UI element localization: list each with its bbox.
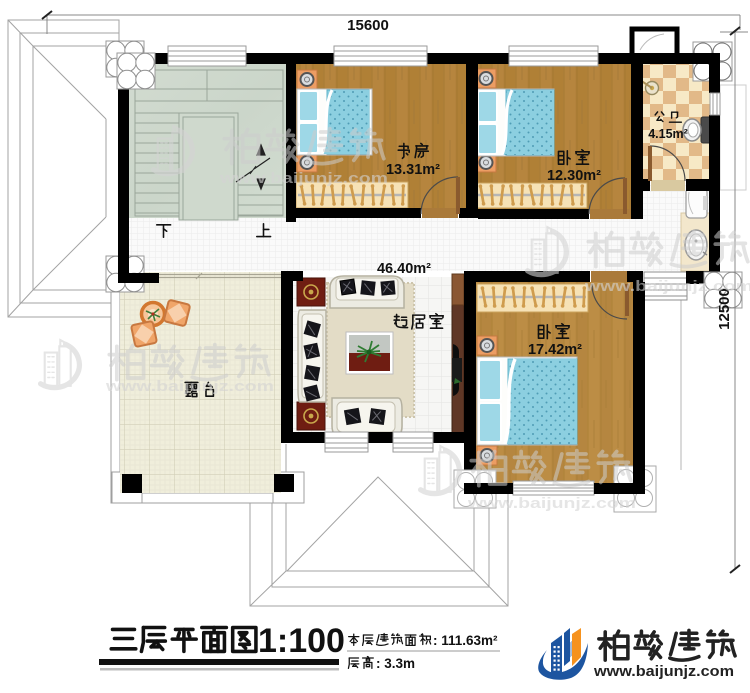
svg-text:www.baijunjz.com: www.baijunjz.com — [584, 278, 750, 295]
svg-text:1:100: 1:100 — [258, 622, 345, 660]
svg-text:www.baijunjz.com: www.baijunjz.com — [593, 663, 734, 680]
svg-text:15600: 15600 — [347, 17, 389, 34]
svg-text:17.42m²: 17.42m² — [528, 342, 582, 358]
svg-text:www.baijunjz.com: www.baijunjz.com — [105, 378, 274, 395]
svg-text:13.31m²: 13.31m² — [386, 162, 440, 178]
svg-text:12.30m²: 12.30m² — [547, 168, 601, 184]
svg-text:46.40m²: 46.40m² — [377, 261, 431, 277]
svg-text:4.15m²: 4.15m² — [648, 127, 688, 141]
svg-text:www.baijunjz.com: www.baijunjz.com — [467, 495, 636, 512]
svg-text:www.baijunjz.com: www.baijunjz.com — [219, 170, 388, 187]
svg-text:: 111.63m²: : 111.63m² — [433, 633, 498, 648]
svg-text:: 3.3m: : 3.3m — [376, 656, 415, 671]
